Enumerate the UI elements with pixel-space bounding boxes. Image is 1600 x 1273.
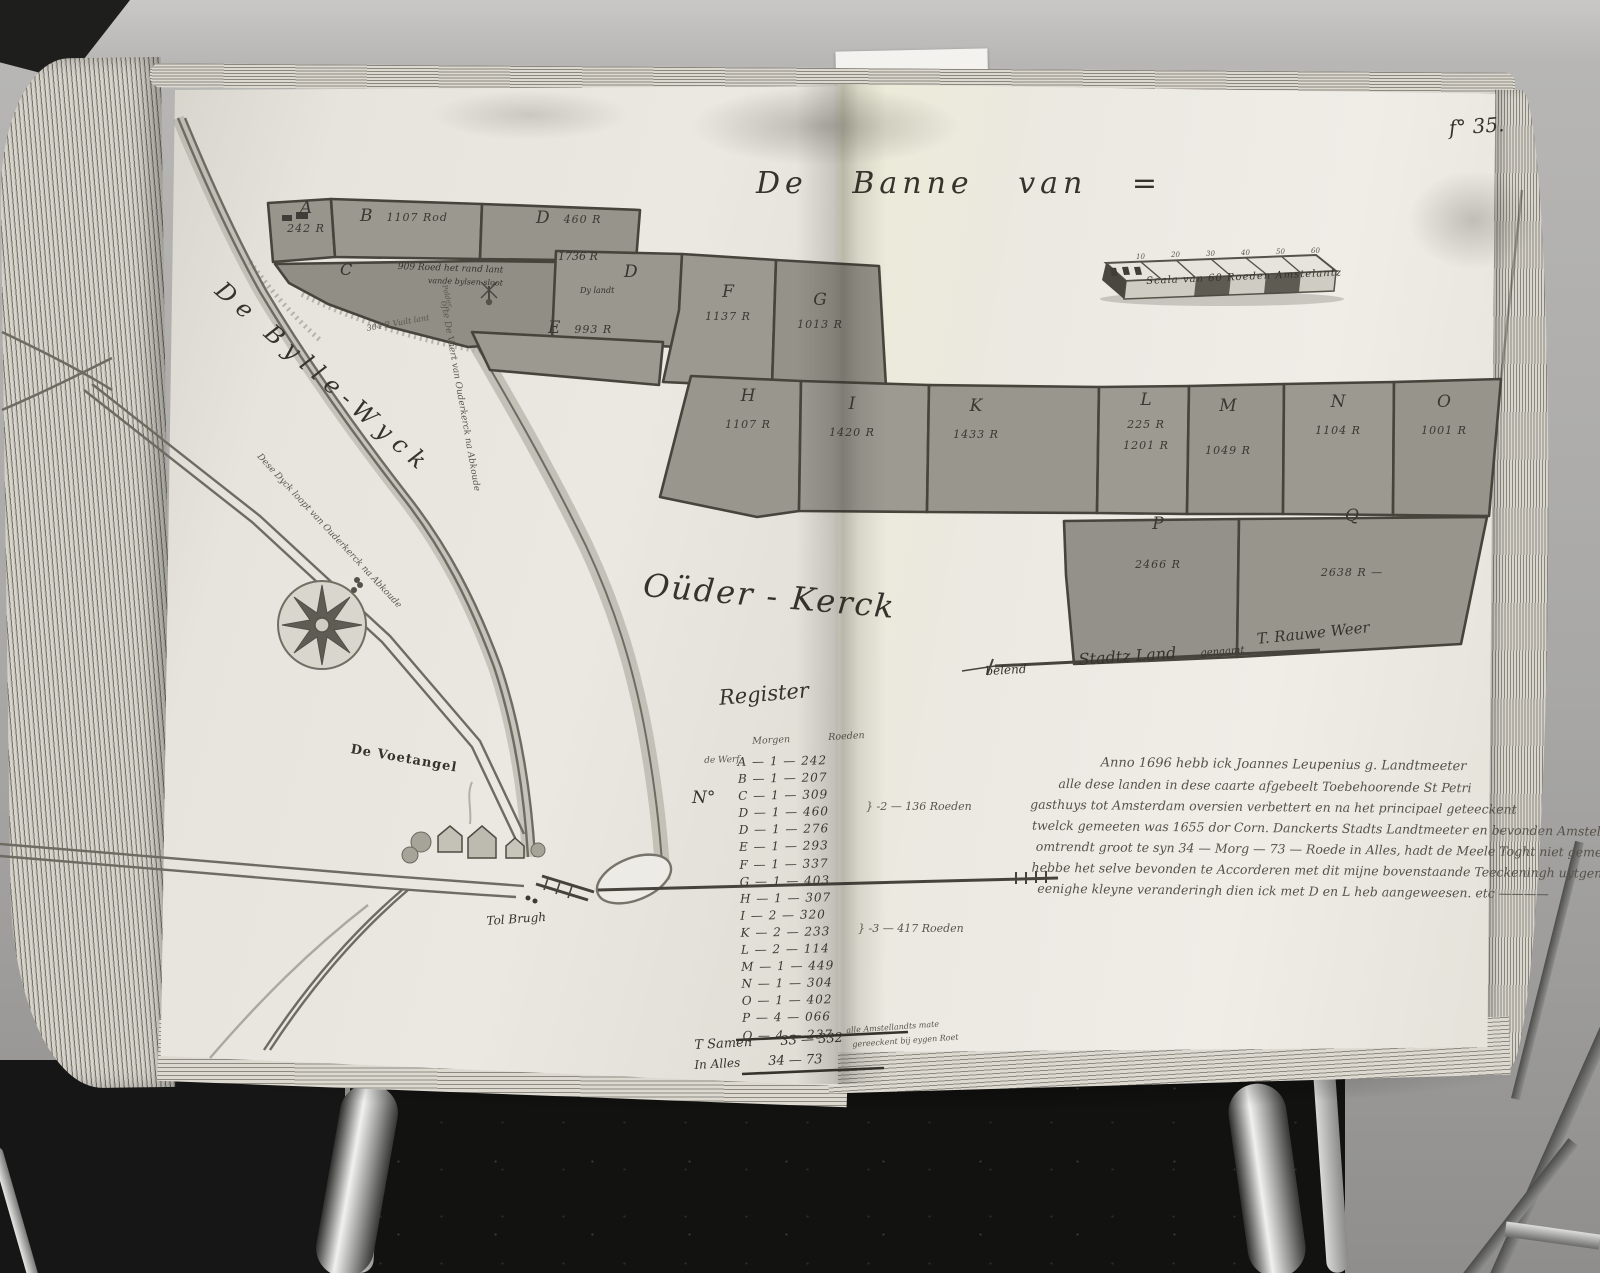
parcel-label-B: B 1107 Rod <box>360 206 448 226</box>
register-row: I — 2 — 320 <box>740 906 833 925</box>
register-row: O — 1 — 402 <box>742 991 835 1010</box>
register-row: K — 2 — 233 <box>740 923 833 942</box>
compass-rose-icon <box>278 577 366 669</box>
parcel-note-D1736: Dy landt <box>580 286 614 295</box>
register-total-value: 34 — 73 <box>768 1052 823 1069</box>
scale-tick: 40 <box>1241 249 1250 257</box>
register-row: F — 1 — 337 <box>739 855 832 874</box>
parcel-label-H: H 1107 R <box>706 386 790 431</box>
scale-tick: 60 <box>1311 247 1320 255</box>
register-pre-note: de Werf <box>704 755 740 766</box>
register-col-morgen: Morgen <box>752 734 790 747</box>
register-row: G — 1 — 403 <box>740 872 833 891</box>
register-rows: A — 1 — 242 B — 1 — 207 C — 1 — 309 D — … <box>737 752 835 1044</box>
register-sum-label: T Samen <box>694 1035 753 1053</box>
register-row: C — 1 — 309 <box>738 786 831 805</box>
bridge <box>526 876 595 904</box>
parcel-label-K: K 1433 R <box>934 396 1018 441</box>
parcel-value-D1736: 1736 R <box>558 250 598 263</box>
houses-sketch <box>438 782 524 858</box>
register-row: E — 1 — 293 <box>739 838 832 857</box>
parcel-letter-C: C <box>340 260 352 279</box>
register-row: D — 1 — 460 <box>738 803 831 822</box>
register-row: D — 1 — 276 <box>739 821 832 840</box>
parcel-label-L: L 225 R 1201 R <box>1104 390 1188 452</box>
parcel-label-O: O 1001 R <box>1402 392 1486 437</box>
parcel-label-E: E 993 R <box>548 318 612 338</box>
register-row: P — 4 — 066 <box>742 1009 835 1028</box>
scale-tick: 20 <box>1171 251 1180 259</box>
scale-tick: 10 <box>1136 253 1145 261</box>
scale-tick: 50 <box>1276 248 1285 256</box>
folio-number: f° 35. <box>1448 112 1505 140</box>
register-brace-note-1: } -2 — 136 Roeden <box>866 800 972 813</box>
parcel-label-Q: Q 2638 R — <box>1310 506 1394 579</box>
register-row: A — 1 — 242 <box>737 752 830 771</box>
parcel-label-D460: D 460 R <box>536 208 601 228</box>
register-brace-note-2: } -3 — 417 Roeden <box>858 922 964 935</box>
surveyor-note: Anno 1696 hebb ick Joannes Leupenius g. … <box>1029 752 1481 904</box>
register-row: N — 1 — 304 <box>741 974 834 993</box>
scale-tick: 30 <box>1206 250 1215 258</box>
map-title: De Banne van = <box>756 166 1162 201</box>
parcel-label-M: M 1049 R <box>1186 396 1270 457</box>
parcel-letter-D1736: D <box>624 262 638 282</box>
register-no-label: N° <box>692 788 715 808</box>
parcel-label-N: N 1104 R <box>1296 392 1380 437</box>
register-row: M — 1 — 449 <box>741 957 834 976</box>
parcel-label-A: A 242 R <box>264 198 348 235</box>
parcel-label-P: P 2466 R <box>1116 514 1200 571</box>
register-col-roeden: Roeden <box>828 730 865 743</box>
register-row: L — 2 — 114 <box>741 940 834 959</box>
photo-of-atlas-page: f° 35. De Banne van = De Bylle-Wyck Oüde… <box>0 0 1600 1273</box>
register-row: B — 1 — 207 <box>738 769 831 788</box>
parcel-label-F: F 1137 R <box>686 282 770 323</box>
parcel-label-G: G 1013 R <box>778 290 862 331</box>
parcel-label-I: I 1420 R <box>810 394 894 439</box>
register-total-label: In Alles <box>694 1056 741 1072</box>
belend-word: belend <box>985 662 1027 678</box>
register-row: H — 1 — 307 <box>740 889 833 908</box>
